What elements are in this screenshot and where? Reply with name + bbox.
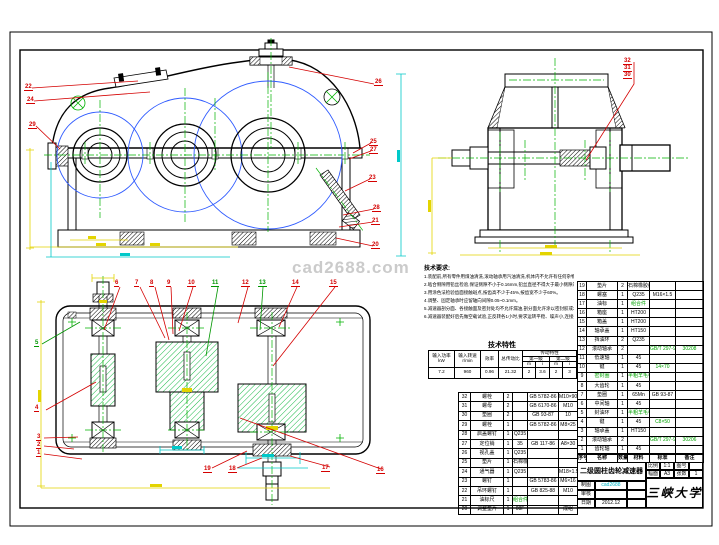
bom-cell-std [650, 318, 676, 327]
bom-cell-note [676, 400, 704, 409]
bom-cell-mat: Q235 [513, 449, 528, 458]
bom-row: 19 垫片 2 石棉橡胶纸 [578, 282, 704, 291]
tech-v-i2: 3 [563, 367, 577, 378]
bom-cell-std [650, 336, 676, 345]
bom-cell-std: GB/T 297-94 [650, 345, 676, 354]
note-line: 4.调整、固定轴承时应留轴向间隙0.05~0.1mm。 [424, 297, 574, 305]
bom-cell-name: 定位销 [471, 439, 504, 448]
bom-cell-std: GB 6170-86 [528, 402, 559, 411]
bom-row: 18 螺塞 1 Q235 M16×1.5 [578, 291, 704, 300]
bom-cell-note [676, 300, 704, 309]
tech-v-m2: 2 [550, 367, 563, 378]
bom-cell-note [676, 372, 704, 381]
front-view [26, 38, 406, 257]
bom-cell-no: 30 [459, 411, 471, 420]
bom-cell-mat: 石棉橡胶纸 [628, 282, 650, 291]
bom-cell-std [528, 496, 559, 505]
callout-plan: 10 [187, 280, 196, 287]
callout-plan: 8 [149, 280, 154, 287]
callout-plan: 4 [34, 405, 39, 412]
bom-cell-mat [513, 486, 528, 495]
bom-cell-note [676, 427, 704, 436]
callout-plan: 11 [211, 280, 219, 287]
bom-cell-name: 螺塞 [587, 291, 618, 300]
bom-cell-mat: HT150 [628, 327, 650, 336]
bom-row: 13 挡油环 2 Q235 [578, 336, 704, 345]
bom-cell-name: 垫圈 [587, 391, 618, 400]
bom-cell-qty: 2 [618, 336, 628, 345]
bom-cell-mat: 65Mn [628, 391, 650, 400]
bom-cell-no: 7 [578, 391, 587, 400]
bom-row: 16 箱座 1 HT200 [578, 309, 704, 318]
bom-row: 25 垫片 1 石棉橡胶纸 [459, 458, 578, 467]
bom-cell-name: 低速轴 [587, 354, 618, 363]
callout-plan: 12 [241, 280, 250, 287]
tech-v-m1: 2 [523, 367, 536, 378]
bom-cell-mat: 石棉橡胶纸 [513, 458, 528, 467]
bom-cell-note: 30208 [676, 345, 704, 354]
bom-cell-no: 16 [578, 309, 587, 318]
bom-cell-name: 视孔盖 [471, 449, 504, 458]
bom-cell-no: 31 [459, 402, 471, 411]
callout-plan: 13 [258, 280, 267, 287]
bom-cell-note [676, 363, 704, 372]
bom-cell-name: 滚动轴承 [587, 345, 618, 354]
bom-row: 30 垫圈 2 GB 93-87 10 [459, 411, 578, 420]
bom-cell-note: 10 [559, 411, 578, 420]
check-label: 审核 [577, 490, 595, 499]
size-label: 幅面 [646, 470, 660, 478]
bom-cell-qty: 1 [504, 505, 513, 514]
bom-cell-qty: 1 [504, 486, 513, 495]
date-extra [627, 499, 646, 508]
callout-side: 30 [623, 72, 632, 79]
side-view [428, 58, 688, 255]
bom-cell-qty: 2 [618, 345, 628, 354]
bom-cell-mat: Q235 [513, 468, 528, 477]
bom-cell-mat [513, 393, 528, 402]
callout-front: 24 [26, 97, 35, 104]
bom-cell-mat: 半粗羊毛毡 [628, 409, 650, 418]
bom-cell-std: C8×50 [650, 418, 676, 427]
bom-cell-note: M10×90 [559, 393, 578, 402]
bom-cell-qty: 1 [504, 496, 513, 505]
note-line: 5.减速器剖分面、各接触面及密封处均不允许漏油,剖分面允许涂以密封胶或水玻璃,不… [424, 305, 574, 313]
drawn-label: 制图 [577, 481, 595, 490]
bom-cell-qty: 2 [504, 393, 513, 402]
callout-plan: 15 [329, 280, 338, 287]
bom-cell-qty: 1 [618, 409, 628, 418]
bom-cell-std [528, 430, 559, 439]
bom-cell-std [650, 300, 676, 309]
callout-front: 26 [374, 79, 383, 86]
bom-row: 14 轴承盖 1 HT150 [578, 327, 704, 336]
dwg-no-label: 图号 [674, 462, 689, 470]
bom-cell-mat [513, 402, 528, 411]
bom-row: 12 滚动轴承 2 GB/T 297-94 30208 [578, 345, 704, 354]
bom-cell-note [676, 318, 704, 327]
bom-cell-name: 轴承盖 [587, 427, 618, 436]
bom-cell-no: 29 [459, 421, 471, 430]
tech-h-eff: 效率 [481, 351, 499, 368]
callout-plan: 16 [376, 467, 385, 474]
bom-cell-std [528, 449, 559, 458]
bom-cell-name: 中间轴 [587, 400, 618, 409]
bom-cell-qty: 1 [618, 354, 628, 363]
date-value: 2012.12 [595, 499, 627, 508]
bom-cell-note: M10 [559, 402, 578, 411]
notes-lines: 1.装配前,所有零件用煤油清洗,滚动轴承用汽油清洗,机体内不允许有任何杂物存在,… [424, 273, 574, 321]
tech-h-ratio: 总传动比 [499, 351, 523, 368]
bom-cell-note: 成组 [559, 505, 578, 514]
bom-cell-qty: 1 [618, 382, 628, 391]
bom-cell-no: 15 [578, 318, 587, 327]
bom-cell-std [528, 468, 559, 477]
bom-cell-no: 32 [459, 393, 471, 402]
bom-cell-note: M18×1.5 [559, 468, 578, 477]
bom-cell-mat: HT150 [628, 427, 650, 436]
bom-cell-qty: 1 [618, 291, 628, 300]
bom-cell-note: M8×25 [559, 421, 578, 430]
bom-cell-name: 密封圈 [587, 372, 618, 381]
bom-row: 9 密封圈 1 半粗羊毛毡 [578, 372, 704, 381]
sheet-label: 张数 [674, 470, 689, 478]
bom-cell-no: 22 [459, 486, 471, 495]
bom-cell-std [650, 409, 676, 418]
bom-cell-name: 垫圈 [471, 411, 504, 420]
bom-cell-name: 调整垫片 [471, 505, 504, 514]
bom-cell-no: 21 [459, 496, 471, 505]
bom-cell-std [650, 382, 676, 391]
bom-cell-note [676, 409, 704, 418]
tech-v-ratio: 21.32 [499, 367, 523, 378]
bom-cell-qty: 1 [618, 318, 628, 327]
bom-cell-name: 启盖螺钉 [471, 430, 504, 439]
bom-cell-std: GB 93-87 [528, 411, 559, 420]
bom-row: 15 箱盖 1 HT200 [578, 318, 704, 327]
bom-cell-note [676, 418, 704, 427]
bom-cell-mat: 半粗羊毛毡 [628, 372, 650, 381]
bom-cell-qty: 1 [504, 477, 513, 486]
bom-cell-qty: 2 [504, 402, 513, 411]
technical-notes: 技术要求: 1.装配前,所有零件用煤油清洗,滚动轴承用汽油清洗,机体内不允许有任… [424, 263, 574, 321]
bom-cell-name: 螺栓 [471, 393, 504, 402]
bom-cell-qty: 2 [504, 411, 513, 420]
bom-cell-name: 封油环 [587, 409, 618, 418]
bom-cell-no: 24 [459, 468, 471, 477]
bom-cell-std [650, 309, 676, 318]
callout-front: 21 [371, 218, 380, 225]
bom-cell-mat: 08F [513, 505, 528, 514]
watermark: cad2688.com [292, 258, 442, 278]
bom-cell-std: GB/T 297-94 [650, 436, 676, 445]
tech-v-eff: 0.96 [481, 367, 499, 378]
bom-cell-mat: 45 [628, 354, 650, 363]
note-line: 1.装配前,所有零件用煤油清洗,滚动轴承用汽油清洗,机体内不允许有任何杂物存在,… [424, 273, 574, 281]
bom-row: 5 封油环 1 半粗羊毛毡 [578, 409, 704, 418]
bom-cell-name: 垫片 [587, 282, 618, 291]
bom-row: 2 滚动轴承 2 GB/T 297-94 30206 [578, 436, 704, 445]
bom-cell-std: 14×70 [650, 363, 676, 372]
bom-row: 22 吊环螺钉 1 GB 825-88 M10 [459, 486, 578, 495]
bom-cell-note [676, 309, 704, 318]
bom-cell-mat [628, 436, 650, 445]
bom-row: 11 低速轴 1 45 [578, 354, 704, 363]
bom-row: 26 视孔盖 1 Q235 [459, 449, 578, 458]
bom-cell-name: 通气器 [471, 468, 504, 477]
drawn-value: cad2688 [595, 481, 627, 490]
bom-cell-qty: 1 [504, 430, 513, 439]
tech-v-i1: 3.6 [536, 367, 550, 378]
bom-row: 6 中间轴 1 45 [578, 400, 704, 409]
tech-h-power: 输入功率kW [429, 351, 455, 368]
bom-cell-mat: Q235 [513, 430, 528, 439]
bom-cell-note: M10 [559, 486, 578, 495]
bom-cell-std [528, 505, 559, 514]
callout-side: 31 [623, 65, 632, 72]
bom-cell-name: 滚动轴承 [587, 436, 618, 445]
bom-cell-note [559, 430, 578, 439]
bom-row: 21 油标尺 1 组合件 [459, 496, 578, 505]
bom-cell-mat: Q235 [628, 291, 650, 300]
tech-v-power: 7.2 [429, 367, 455, 378]
bom-cell-qty: 1 [618, 391, 628, 400]
bom-cell-no: 23 [459, 477, 471, 486]
date-label: 日期 [577, 499, 595, 508]
bom-cell-mat: HT200 [628, 309, 650, 318]
callout-plan: 1 [36, 450, 41, 457]
bom-cell-qty: 1 [504, 458, 513, 467]
bom-cell-std: GB 117-86 [528, 439, 559, 448]
bom-cell-std [650, 400, 676, 409]
bom-cell-note [676, 382, 704, 391]
bom-cell-name: 垫片 [471, 458, 504, 467]
bom-cell-qty: 1 [504, 421, 513, 430]
bom-row: 24 通气器 1 Q235 M18×1.5 [459, 468, 578, 477]
callout-plan: 5 [34, 340, 39, 347]
bom-cell-no: 12 [578, 345, 587, 354]
bom-cell-mat: 45 [628, 418, 650, 427]
bom-row: 20 调整垫片 1 08F 成组 [459, 505, 578, 514]
bom-cell-qty: 1 [618, 300, 628, 309]
bom-cell-qty: 1 [618, 418, 628, 427]
bom-cell-note: A8×30 [559, 439, 578, 448]
bom-cell-std [528, 458, 559, 467]
bom-cell-std: GB 5782-86 [528, 421, 559, 430]
bom-cell-note [676, 336, 704, 345]
callout-plan: 3 [36, 434, 41, 441]
bom-cell-std [650, 327, 676, 336]
bom-cell-name: 大齿轮 [587, 382, 618, 391]
callout-plan: 14 [291, 280, 300, 287]
bom-cell-no: 10 [578, 363, 587, 372]
bom-cell-note: 30206 [676, 436, 704, 445]
notes-heading: 技术要求: [424, 263, 574, 272]
bom-cell-no: 5 [578, 409, 587, 418]
bom-row: 29 螺栓 1 GB 5782-86 M8×25 [459, 421, 578, 430]
bom-row: 28 启盖螺钉 1 Q235 [459, 430, 578, 439]
callout-plan: 17 [321, 465, 330, 472]
bom-cell-mat [513, 411, 528, 420]
bom-cell-note [559, 496, 578, 505]
bom-cell-no: 13 [578, 336, 587, 345]
bom-cell-qty: 1 [504, 439, 513, 448]
check-value [595, 490, 627, 499]
bom-cell-name: 轴承盖 [587, 327, 618, 336]
callout-plan: 7 [134, 280, 139, 287]
bom-cell-mat [513, 477, 528, 486]
bom-cell-mat: Q235 [628, 336, 650, 345]
bom-row: 31 螺母 2 GB 6170-86 M10 [459, 402, 578, 411]
callout-front: 20 [371, 242, 380, 249]
bom-cell-mat: 45 [628, 400, 650, 409]
callout-front: 23 [368, 175, 377, 182]
check-extra [627, 490, 646, 499]
bom-cell-no: 19 [578, 282, 587, 291]
bom-cell-std: GB 825-88 [528, 486, 559, 495]
title-block: 二级圆柱齿轮减速器 制图 cad2688 审核 日期 2012.12 比例 1:… [577, 462, 703, 508]
bom-cell-note [676, 391, 704, 400]
dwg-no-value [689, 462, 703, 470]
bom-cell-no: 27 [459, 439, 471, 448]
tech-table: 输入功率kW 输入转速r/min 效率 总传动比 传动特性 第一级 第二级 m … [428, 350, 577, 379]
bom-cell-qty: 1 [618, 327, 628, 336]
bom-cell-name: 箱盖 [587, 318, 618, 327]
cad-drawing-canvas: cad2688.com 22 24 29 26 25 27 23 28 21 2… [0, 0, 719, 545]
bom-cell-mat [628, 345, 650, 354]
bom-cell-qty: 1 [504, 468, 513, 477]
bom-row: 17 油标 1 组合件 [578, 300, 704, 309]
size-value: A3 [660, 470, 674, 478]
bom-cell-name: 键 [587, 418, 618, 427]
note-line: 6.减速器装配好后先做空载试验,正反转各1小时,要求运转平稳、噪声小,连接处不松… [424, 313, 574, 321]
callout-front: 27 [369, 147, 378, 154]
bom-cell-std [650, 427, 676, 436]
bom-cell-no: 9 [578, 372, 587, 381]
bom-cell-note [559, 449, 578, 458]
bom-cell-mat: 35 [513, 439, 528, 448]
bom-cell-no: 4 [578, 418, 587, 427]
callout-front: 22 [24, 84, 33, 91]
bom-cell-name: 螺钉 [471, 477, 504, 486]
callout-plan: 6 [114, 280, 119, 287]
bom-row: 23 螺钉 1 GB 5783-86 M6×16 [459, 477, 578, 486]
callout-front: 29 [28, 122, 37, 129]
bom-cell-note [676, 282, 704, 291]
bom-cell-no: 25 [459, 458, 471, 467]
bom-cell-std [650, 354, 676, 363]
bom-cell-qty: 2 [618, 282, 628, 291]
bom-cell-name: 吊环螺钉 [471, 486, 504, 495]
bom-cell-std: GB 5783-86 [528, 477, 559, 486]
callout-plan: 9 [166, 280, 171, 287]
tech-h-speed: 输入转速r/min [455, 351, 481, 368]
bom-cell-name: 油标 [587, 300, 618, 309]
drawing-title: 二级圆柱齿轮减速器 [577, 462, 646, 481]
bom-cell-std: GB 5782-86 [528, 393, 559, 402]
bom-cell-no: 2 [578, 436, 587, 445]
bom-row: 27 定位销 1 35 GB 117-86 A8×30 [459, 439, 578, 448]
bom-cell-no: 3 [578, 427, 587, 436]
bom-cell-name: 挡油环 [587, 336, 618, 345]
bom-cell-mat: HT200 [628, 318, 650, 327]
bom-cell-name: 螺母 [471, 402, 504, 411]
bom-cell-note: M6×16 [559, 477, 578, 486]
bom-cell-qty: 1 [618, 427, 628, 436]
callout-plan: 19 [203, 466, 212, 473]
school-name: 三峡大学 [646, 478, 703, 508]
bom-cell-qty: 1 [504, 449, 513, 458]
bom-cell-mat: 组合件 [628, 300, 650, 309]
drawn-extra [627, 481, 646, 490]
bom-cell-name: 箱座 [587, 309, 618, 318]
bom-cell-std [650, 372, 676, 381]
bom-cell-std: M16×1.5 [650, 291, 676, 300]
bom-cell-qty: 1 [618, 400, 628, 409]
bom-cell-qty: 1 [618, 309, 628, 318]
bom-cell-qty: 2 [618, 436, 628, 445]
bom-cell-no: 17 [578, 300, 587, 309]
bom-cell-mat: 45 [628, 363, 650, 372]
tech-table-title: 技术特性 [428, 340, 576, 350]
bom-cell-mat: 组合件 [513, 496, 528, 505]
scale-value: 1:1 [660, 462, 674, 470]
bom-cell-name: 螺栓 [471, 421, 504, 430]
bom-row: 32 螺栓 2 GB 5782-86 M10×90 [459, 393, 578, 402]
bom-cell-mat [513, 421, 528, 430]
bom-cell-no: 26 [459, 449, 471, 458]
bom-cell-qty: 1 [618, 363, 628, 372]
bom-cell-std: GB 93-87 [650, 391, 676, 400]
bom-cell-no: 18 [578, 291, 587, 300]
bom-table-right: 19 垫片 2 石棉橡胶纸 18 螺塞 1 Q235 M16×1.5 17 油标… [577, 281, 704, 455]
bom-cell-no: 8 [578, 382, 587, 391]
note-line: 3.用涂色法检验齿面接触斑点,按齿高不少于45%,按齿宽不少于60%。 [424, 289, 574, 297]
bom-cell-no: 11 [578, 354, 587, 363]
bom-cell-note [676, 327, 704, 336]
bom-row: 10 键 1 45 14×70 [578, 363, 704, 372]
bom-row: 7 垫圈 1 65Mn GB 93-87 [578, 391, 704, 400]
note-line: 2.啮合侧隙用铅丝检验,保证侧隙不小于0.16mm,铅丝直径不得大于最小侧隙的4… [424, 281, 574, 289]
callout-side: 32 [623, 58, 632, 65]
bom-table-left: 32 螺栓 2 GB 5782-86 M10×90 31 螺母 2 GB 617… [458, 392, 578, 515]
callout-plan: 2 [36, 442, 41, 449]
callout-plan: 18 [228, 466, 237, 473]
callout-front: 28 [372, 205, 381, 212]
bom-cell-std [650, 282, 676, 291]
bom-cell-no: 28 [459, 430, 471, 439]
bom-cell-qty: 1 [618, 372, 628, 381]
bom-cell-note [676, 291, 704, 300]
bom-cell-no: 6 [578, 400, 587, 409]
sheet-value: 1 [689, 470, 703, 478]
bom-cell-name: 油标尺 [471, 496, 504, 505]
bom-row: 8 大齿轮 1 45 [578, 382, 704, 391]
bom-cell-no: 20 [459, 505, 471, 514]
bom-cell-note [676, 354, 704, 363]
bom-cell-no: 14 [578, 327, 587, 336]
scale-label: 比例 [646, 462, 660, 470]
bom-row: 4 键 1 45 C8×50 [578, 418, 704, 427]
bom-cell-mat: 45 [628, 382, 650, 391]
bom-row: 3 轴承盖 1 HT150 [578, 427, 704, 436]
bom-cell-note [559, 458, 578, 467]
callout-front: 25 [369, 139, 378, 146]
tech-v-speed: 960 [455, 367, 481, 378]
bom-cell-name: 键 [587, 363, 618, 372]
